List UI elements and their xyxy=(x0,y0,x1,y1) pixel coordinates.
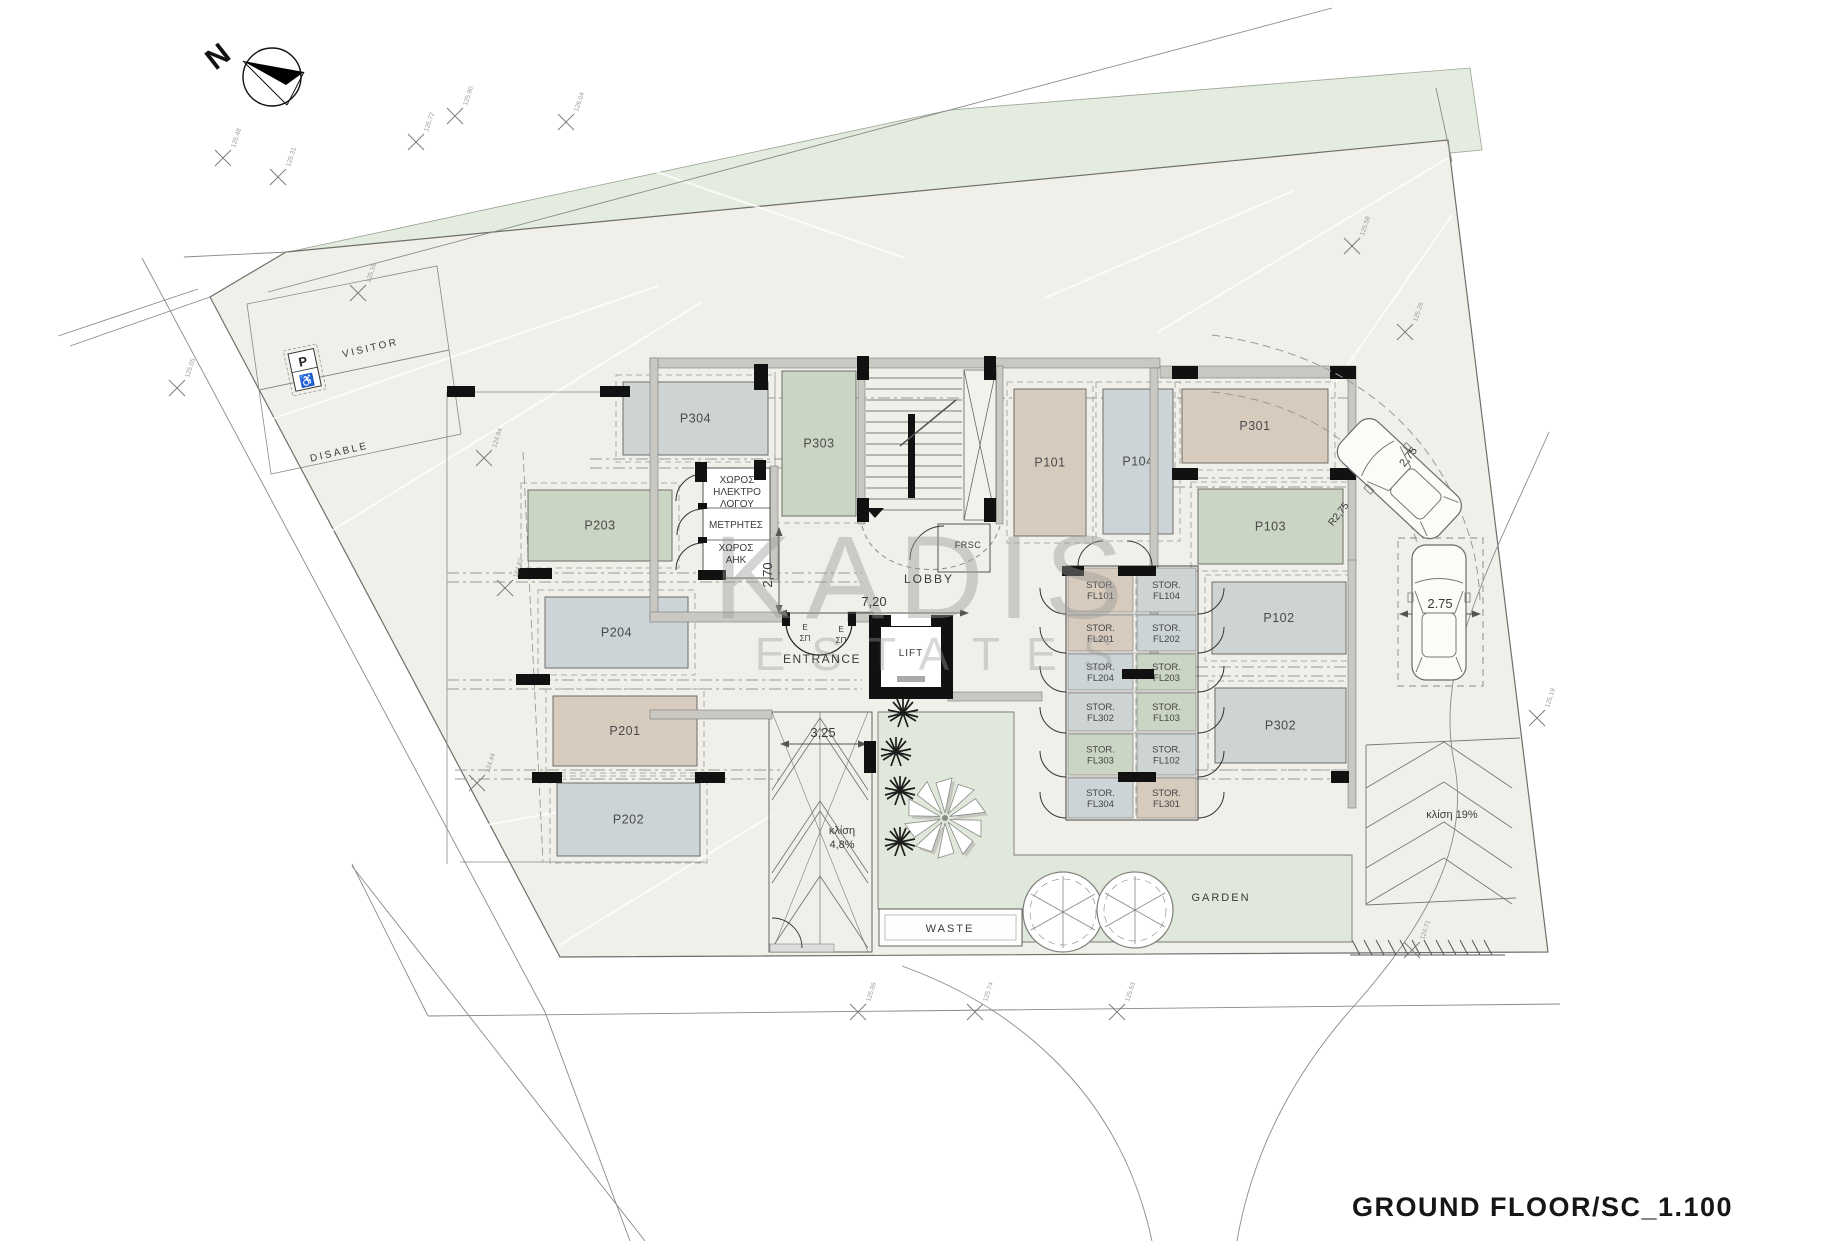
room-label: ΗΛΕΚΤΡΟ xyxy=(713,487,761,498)
parking-stall-label: P101 xyxy=(1034,456,1065,470)
plan-label: LOBBY xyxy=(904,572,954,586)
plan-label: κλίση xyxy=(829,825,855,837)
spot-elevation-label: 125.63 xyxy=(1124,981,1137,1002)
parking-stall-label: P102 xyxy=(1263,611,1294,625)
room-label: ΑΗΚ xyxy=(726,555,747,566)
watermark: KADIS ESTATES xyxy=(713,512,1139,680)
plan-label: 4,8% xyxy=(829,839,854,851)
storage-unit-label: STOR.FL202 xyxy=(1152,623,1181,645)
room-label: ΧΩΡΟΣ xyxy=(720,475,755,486)
spot-elevation-label: 125.05 xyxy=(184,357,197,378)
plan-label: κλίση 19% xyxy=(1426,809,1478,821)
storage-unit-label: STOR.FL102 xyxy=(1152,745,1181,767)
floor-plan-drawing: P ♿ P304P303P101P104P301P103P102P302P203… xyxy=(0,0,1840,1241)
spot-elevation-label: 125.90 xyxy=(462,85,475,106)
dimension-label: 7,20 xyxy=(861,594,886,609)
parking-stall-label: P303 xyxy=(803,437,834,451)
storage-unit-label: STOR.FL304 xyxy=(1086,788,1115,810)
plan-label: LIFT xyxy=(899,648,924,659)
storage-unit-label: STOR.FL103 xyxy=(1152,702,1181,724)
parking-stall-label: P203 xyxy=(584,519,615,533)
dimension-label: 3,25 xyxy=(810,725,835,740)
parking-stall-label: P304 xyxy=(680,412,711,426)
parking-stall-label: P201 xyxy=(609,724,640,738)
parking-stall-label: P302 xyxy=(1265,719,1296,733)
storage-unit-label: STOR.FL203 xyxy=(1152,662,1181,684)
drawing-title: GROUND FLOOR/SC_1.100 xyxy=(1352,1192,1733,1223)
north-letter: N xyxy=(199,37,236,76)
plan-label: GARDEN xyxy=(1191,892,1250,904)
room-label: ΜΕΤΡΗΤΕΣ xyxy=(709,520,763,531)
north-arrow: N xyxy=(199,37,304,106)
parking-stall-label: P202 xyxy=(613,813,644,827)
plan-label: FRSC xyxy=(955,540,982,550)
dimension-label: 2,70 xyxy=(760,562,775,587)
plan-label: ENTRANCE xyxy=(783,652,861,666)
storage-unit-label: STOR.FL104 xyxy=(1152,580,1181,602)
spot-elevation-label: 126.04 xyxy=(573,91,586,112)
plan-label: ΣΠ xyxy=(800,634,811,643)
storage-unit-label: STOR.FL301 xyxy=(1152,788,1181,810)
room-label: ΛΟΓΟΥ xyxy=(720,499,754,510)
spot-elevation-label: 125.86 xyxy=(865,981,878,1002)
parking-stall-label: P204 xyxy=(601,626,632,640)
plan-label: WASTE xyxy=(926,923,975,935)
storage-unit-label: STOR.FL303 xyxy=(1086,745,1115,767)
car-icon xyxy=(1408,545,1470,680)
dimension-label: 2.75 xyxy=(1427,596,1452,611)
spot-elevation-label: 125.48 xyxy=(230,127,243,148)
room-label: ΧΩΡΟΣ xyxy=(719,543,754,554)
tree-icon xyxy=(1097,872,1173,948)
plan-label: E xyxy=(838,625,843,634)
storage-unit-label: STOR.FL302 xyxy=(1086,702,1115,724)
plan-label: E xyxy=(802,623,807,632)
plan-label: ΣΠ xyxy=(836,636,847,645)
spot-elevation-label: 125.74 xyxy=(982,981,995,1002)
parking-stall-label: P103 xyxy=(1255,520,1286,534)
spot-elevation-label: 125.19 xyxy=(1544,687,1557,708)
tree-icon xyxy=(1023,872,1103,952)
parking-stall-label: P301 xyxy=(1239,419,1270,433)
parking-stall-label: P104 xyxy=(1122,455,1153,469)
spot-elevation-label: 125.31 xyxy=(285,146,298,167)
spot-elevation-label: 125.72 xyxy=(423,111,436,132)
